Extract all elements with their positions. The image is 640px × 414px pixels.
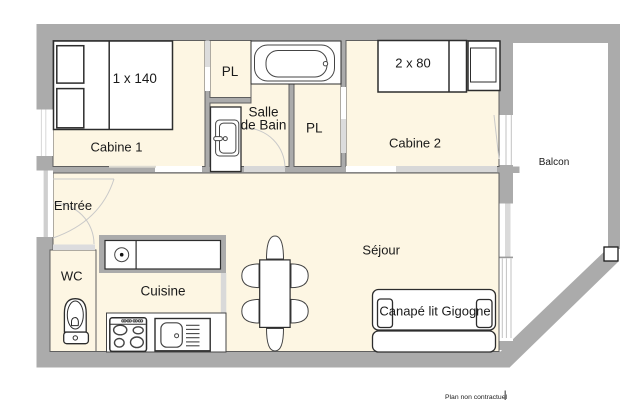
svg-text:Balcon: Balcon xyxy=(539,157,570,168)
svg-text:Plan non contractuel: Plan non contractuel xyxy=(445,394,507,401)
svg-text:de Bain: de Bain xyxy=(241,118,287,133)
svg-text:2 x 80: 2 x 80 xyxy=(395,56,430,71)
svg-text:Cabine 1: Cabine 1 xyxy=(90,140,142,155)
svg-text:PL: PL xyxy=(222,64,239,79)
svg-text:Entrée: Entrée xyxy=(54,198,92,213)
svg-text:Cabine 2: Cabine 2 xyxy=(389,136,441,151)
svg-text:Cuisine: Cuisine xyxy=(140,284,185,299)
svg-text:Canapé lit Gigogne: Canapé lit Gigogne xyxy=(379,304,490,319)
svg-text:Séjour: Séjour xyxy=(362,243,400,258)
svg-text:WC: WC xyxy=(61,269,83,284)
svg-text:PL: PL xyxy=(306,121,323,136)
svg-text:1 x 140: 1 x 140 xyxy=(113,71,157,86)
